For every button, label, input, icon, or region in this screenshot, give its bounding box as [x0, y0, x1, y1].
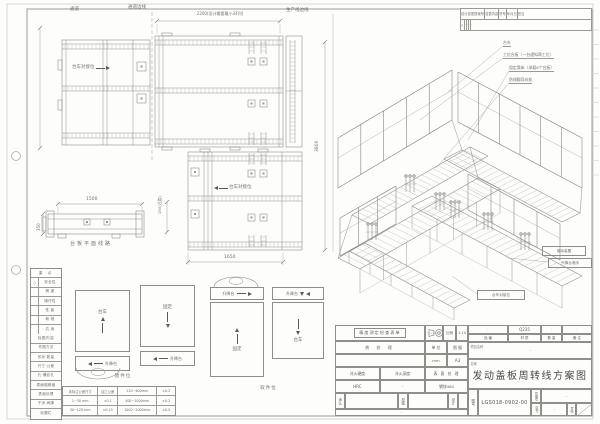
mgmt-no-value-cell: · — [541, 389, 592, 403]
station-box-lift-load-2: 升降台 — [140, 351, 195, 366]
depth-label-cell: 淬火深度 — [380, 367, 425, 380]
lift-label: 升降台 — [286, 291, 298, 297]
check-mark: ○ — [31, 278, 39, 286]
qty-label-cell: 数 量 — [541, 334, 562, 342]
revision-header-cell: 年月日 — [507, 9, 518, 19]
arrow-up-icon — [235, 328, 239, 332]
class-value-cell: · — [541, 403, 567, 416]
accuracy-check-cell: 精度测定检查表单 — [335, 325, 425, 341]
dock-position-label-d: 台车对接位 — [214, 186, 252, 191]
check-label-cell: 校图 — [398, 393, 408, 409]
pick-position-label: 取件位 — [246, 387, 291, 392]
check-item-row: ○ 安全性 — [31, 278, 61, 287]
scale-value-cell: 1:10 — [456, 325, 468, 341]
remark-label-cell: 备 注 — [562, 334, 592, 342]
arrow-up-icon — [101, 317, 105, 321]
design-label-cell: 设计 — [448, 393, 458, 409]
mgmt-no-label-cell: 管理号 — [531, 389, 541, 403]
dwg-no-label-cell: 图号 — [468, 389, 478, 416]
check-label: 新 规 — [39, 316, 61, 324]
tolerance-cell: ±0.3 — [157, 396, 175, 404]
arrow-left-icon — [153, 357, 157, 361]
qty-value-cell: · — [541, 325, 562, 334]
tolerance-table: 未标注公差尺寸 加工公差 120~400mm ±0.2 1~30 mm ±0.1… — [62, 386, 176, 416]
check-item-row: 孔·螺纹孔 — [31, 372, 61, 381]
iso-boxed-callout-drive: 驱动装置 — [542, 246, 586, 256]
check-mark — [31, 306, 39, 314]
check-label: 孔·螺纹孔 — [31, 372, 61, 380]
arrow-stem — [102, 323, 103, 333]
check-item-row: 共 用 — [31, 325, 61, 334]
tolerance-cell: ±0.2 — [157, 387, 175, 395]
platform-plan-label: 台板平面线路 — [70, 242, 112, 248]
leader-line — [219, 188, 228, 189]
check-item-row: 作图方法 — [31, 344, 61, 353]
check-table-header: 重 点 — [31, 269, 61, 278]
revision-table: 设计变更提案号变更内容符号年月日担当 △···· — [460, 8, 592, 31]
arrow-left-icon — [88, 362, 92, 366]
dim-350-label: 350 — [37, 223, 41, 231]
check-label: 干涉·间隙 — [31, 400, 61, 408]
unit-value-cell: mm — [425, 354, 447, 367]
check-label: 标题栏 — [31, 409, 61, 418]
lift-label: 升降台 — [105, 361, 117, 367]
tolerance-cell: 1000~2000mm — [118, 406, 157, 415]
iso-callout-trolley: 台车 — [503, 41, 511, 47]
aisle-edge-label: 通道边线 — [128, 6, 146, 11]
arrow-stem — [237, 293, 246, 294]
check-item-row: 精 度 — [31, 288, 61, 297]
tolerance-cell: 未标注公差尺寸 — [63, 387, 98, 395]
arrow-stem — [298, 319, 299, 329]
tolerance-cell: 1~30 mm — [63, 396, 98, 404]
depth-value-cell: · — [380, 380, 425, 393]
iso-callout-fixed-bed: 固定滑床（承载6个台板） — [509, 66, 554, 72]
check-label: 尺寸·公差 — [31, 362, 61, 370]
dwg-no-value-cell: LGS018-0902-00 — [478, 389, 531, 416]
fixed-label: 固定 — [163, 304, 172, 310]
revision-header-cell: 设计变更提案号 — [461, 9, 485, 19]
iso-callout-station-plate: 工位台板（一台虚拟两工位） — [503, 53, 554, 59]
dim-3800-label: 3800 — [316, 141, 321, 152]
project-name-label: 项目名称 — [471, 344, 484, 349]
project-name-cell: 项目名称 · — [468, 342, 592, 359]
tolerance-cell: 120~400mm — [118, 387, 157, 395]
accuracy-check-label: 精度测定检查表单 — [354, 328, 406, 338]
iso-boxed-callout-dock: 台车对接位 — [477, 290, 525, 300]
design-signature-cell — [458, 393, 468, 409]
dock-position-label-a: 台车对接位 — [72, 66, 110, 71]
part-no-label-cell: 品 番 — [468, 334, 508, 342]
tolerance-row: 1~30 mm ±0.1 400~1000mm ±0.3 — [63, 396, 175, 405]
check-item-row: 性 能 — [31, 306, 61, 315]
page-fraction-cell — [576, 403, 592, 416]
material-value-cell: Q235 — [508, 325, 541, 334]
trolley-label: 台车 — [98, 309, 107, 315]
tolerance-row: 30~120 mm ±0.15 1000~2000mm ±0.5 — [63, 406, 175, 415]
fixed-label: 固定 — [233, 346, 242, 352]
revision-header-cell: 变更内容 — [485, 9, 499, 19]
station-box-lift-load-1: 升降台 — [75, 356, 130, 371]
dim-150-label: 150(过渡) — [158, 196, 162, 214]
check-item-row: 表面粗糙度 — [31, 381, 61, 390]
check-item-table: 重 点 ○ 安全性 精 度 操作性 — [30, 268, 62, 420]
tolerance-cell: 加工公差 — [98, 387, 118, 395]
surface-label-cell: 表 面 处 理 — [425, 367, 468, 380]
check-signature-cell — [408, 393, 448, 409]
tolerance-cell: ±0.5 — [157, 406, 175, 415]
arrow-right-icon — [248, 292, 252, 296]
check-label: 共 用 — [39, 325, 61, 334]
approve-signature-cell — [345, 393, 398, 409]
station-box-fixed-load: 固定 — [140, 285, 195, 347]
leader-line — [96, 68, 105, 69]
surface-value-cell: 镀锌480 — [425, 380, 468, 393]
material-label-cell: 材 质 — [508, 334, 541, 342]
station-box-lift-pick-2: 升降台 — [272, 287, 324, 300]
page-diagonal-icon — [577, 403, 591, 416]
iso-boxed-callout-lift-bed: 升降台滚床 — [548, 258, 592, 268]
check-item-row: 操作性 — [31, 297, 61, 306]
page-label-cell: 页码 — [567, 403, 576, 416]
heat-treatment-value-cell — [335, 354, 425, 367]
dock-label-text: 台车对接位 — [229, 186, 252, 191]
check-items: ○ 安全性 精 度 操作性 性 能 — [31, 278, 61, 334]
arrow-stem — [159, 358, 168, 359]
hardness-value-cell: HRC — [335, 380, 380, 393]
check-mark — [31, 316, 39, 324]
tolerance-cell: 30~120 mm — [63, 406, 98, 415]
class-label-cell: 区分 — [531, 403, 541, 416]
arrow-left-icon — [214, 186, 218, 190]
title-block: 精度测定检查表单 比例 1:10 热 处 理 单 位 图 幅 mm A3 淬火硬… — [335, 325, 592, 416]
revision-header-cell: 符号 — [499, 9, 507, 19]
size-label-cell: 图 幅 — [447, 341, 468, 354]
check-table-section2: 检图内容 — [31, 334, 61, 343]
drawing-title: 发动盖板周转线方案图 — [473, 367, 588, 382]
dim-1500-label: 1500 — [86, 198, 97, 203]
check-item-row: 表面处理 — [31, 390, 61, 399]
drawing-sheet: 通道 通道边线 2200(设计需要最小34列) 生产线边线 台车对接位 台车对接… — [0, 0, 600, 424]
check-item-row: 标题栏 — [31, 409, 61, 418]
dock-label-text: 台车对接位 — [72, 66, 95, 71]
station-box-lift-pick-1: 升降台 — [210, 287, 264, 300]
check-label: 作图方法 — [31, 344, 61, 352]
arrow-right-icon — [106, 66, 110, 70]
dim-2200-label: 2200(设计需要最小34列) — [160, 12, 280, 16]
arrow-left-icon — [306, 292, 310, 296]
size-value-cell: A3 — [447, 354, 468, 367]
revision-value-row: △···· — [461, 20, 591, 31]
check-item-row: 尺寸·公差 — [31, 362, 61, 371]
dim-1650-label: 1650 — [224, 256, 235, 261]
aisle-label: 通道 — [70, 8, 79, 13]
load-position-label: 放件位 — [103, 375, 143, 380]
heat-treatment-label-cell: 热 处 理 — [335, 341, 425, 354]
check-label: 表面处理 — [31, 390, 61, 398]
line-edge-label: 生产线边线 — [286, 9, 309, 14]
check-item-row: 新 规 — [31, 316, 61, 325]
project-name-value: · — [529, 348, 530, 353]
revision-value-cell: · — [471, 20, 472, 31]
check-label: 性 能 — [39, 306, 61, 314]
arrow-stem — [167, 312, 168, 322]
check-label: 精 度 — [39, 288, 61, 296]
tolerance-cell: ±0.1 — [98, 396, 118, 404]
trolley-label: 台车 — [294, 337, 303, 343]
tolerance-cell: 400~1000mm — [118, 396, 157, 404]
projection-symbol-cell — [425, 325, 443, 341]
part-no-value-cell: · — [468, 325, 508, 334]
station-box-trolley-load: 台车 — [75, 290, 130, 352]
lift-label: 升降台 — [170, 356, 182, 362]
drawing-title-cell: 名称 发动盖板周转线方案图 — [468, 359, 592, 389]
scale-label-cell: 比例 — [443, 325, 456, 341]
check-mark — [31, 288, 39, 296]
approve-label-cell: 承认 — [335, 393, 345, 409]
arrow-down-icon — [300, 292, 304, 296]
check-label: 表面粗糙度 — [31, 381, 61, 389]
check-label: 操作性 — [39, 297, 61, 305]
arrow-stem — [237, 334, 238, 344]
signature-note-cell: · — [335, 409, 468, 416]
remark-value-cell: · — [562, 325, 592, 334]
check-mark — [31, 297, 39, 305]
check-item-row: 干涉·间隙 — [31, 400, 61, 409]
hardness-label-cell: 淬火硬度 — [335, 367, 380, 380]
tolerance-row: 未标注公差尺寸 加工公差 120~400mm ±0.2 — [63, 387, 175, 396]
lift-label: 升降台 — [223, 291, 235, 297]
check-mark — [31, 325, 39, 334]
arrow-stem — [94, 363, 103, 364]
check-label: 安全性 — [39, 278, 61, 286]
unit-label-cell: 单 位 — [425, 341, 447, 354]
arrow-down-icon — [296, 331, 300, 335]
third-angle-projection-icon — [426, 325, 442, 341]
revision-header-cell: 担当 — [518, 9, 525, 19]
check-items2: 作图方法 形状·数量 尺寸·公差 孔·螺纹孔 表面粗糙度 — [31, 344, 61, 419]
iso-callout-guide-rail: 防倾翻导向轨 — [509, 78, 532, 84]
revision-header-row: 设计变更提案号变更内容符号年月日担当 — [461, 9, 591, 20]
tolerance-cell: ±0.15 — [98, 406, 118, 415]
check-item-row: 形状·数量 — [31, 353, 61, 362]
name-label: 名称 — [471, 361, 477, 366]
check-label: 形状·数量 — [31, 353, 61, 361]
station-box-fixed-pick: 固定 — [210, 302, 264, 377]
arrow-down-icon — [166, 324, 170, 328]
station-box-trolley-pick: 台车 — [272, 302, 324, 359]
